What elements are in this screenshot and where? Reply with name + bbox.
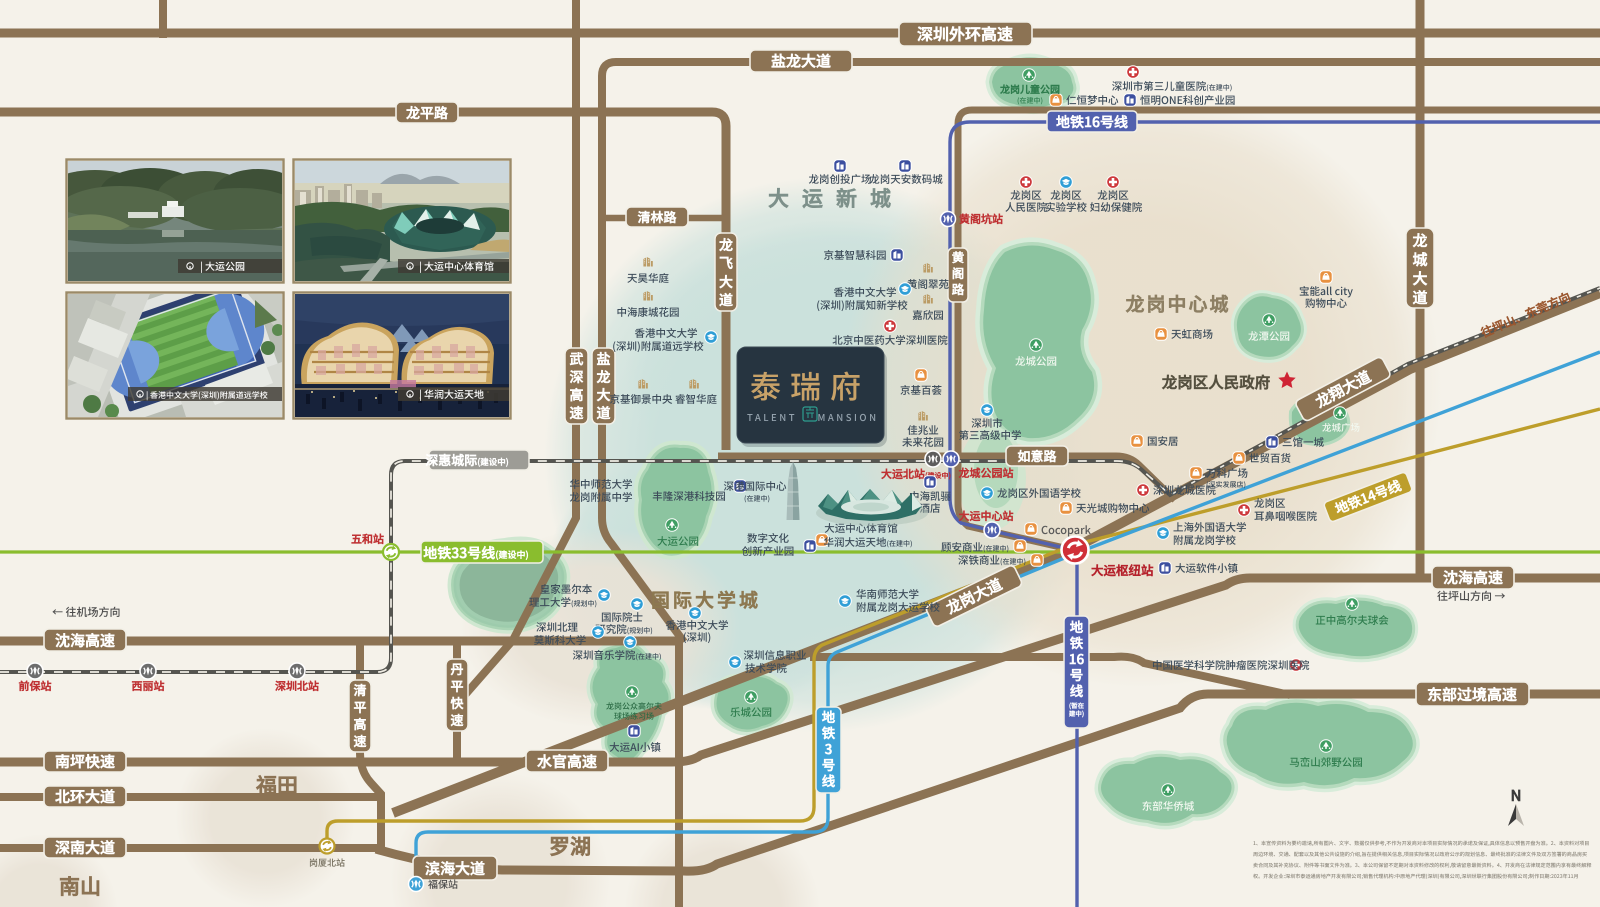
svg-text:北环大道: 北环大道 bbox=[54, 786, 115, 807]
svg-text:1、本宣传资料为要约邀请,所有图片、文字、数据仅供参考,不作: 1、本宣传资料为要约邀请,所有图片、文字、数据仅供参考,不作为开发商对本项目实际… bbox=[1253, 840, 1589, 847]
svg-text:附属龙岗大运学校: 附属龙岗大运学校 bbox=[856, 600, 940, 615]
svg-text:购物中心: 购物中心 bbox=[1305, 296, 1347, 311]
svg-text:TALENT: TALENT bbox=[747, 410, 797, 424]
svg-text:西丽站: 西丽站 bbox=[132, 678, 165, 694]
svg-text:福保站: 福保站 bbox=[428, 876, 458, 891]
svg-text:深南大道: 深南大道 bbox=[55, 837, 115, 858]
svg-text:大运枢纽站: 大运枢纽站 bbox=[1090, 560, 1154, 579]
svg-text:(深圳)附属道远学校: (深圳)附属道远学校 bbox=[612, 339, 704, 354]
svg-text:深港国际中心: 深港国际中心 bbox=[724, 479, 787, 494]
svg-text:京基百荟: 京基百荟 bbox=[900, 383, 942, 398]
svg-text:| 香港中文大学(深圳)附属道远学校: | 香港中文大学(深圳)附属道远学校 bbox=[146, 390, 268, 401]
svg-text:龙岗区人民政府: 龙岗区人民政府 bbox=[1161, 371, 1271, 393]
svg-text:天昊华庭: 天昊华庭 bbox=[627, 271, 669, 286]
svg-text:恒明ONE科创产业园: 恒明ONE科创产业园 bbox=[1140, 93, 1235, 108]
svg-text:天虹商场: 天虹商场 bbox=[1171, 327, 1213, 342]
svg-text:周边环境、交通、配套以及其他公共设施的介绍,旨在提供相关信息: 周边环境、交通、配套以及其他公共设施的介绍,旨在提供相关信息,项目实际情况以政府… bbox=[1253, 851, 1587, 858]
svg-text:京基御景中央: 京基御景中央 bbox=[610, 392, 673, 407]
svg-text:丹平快速: 丹平快速 bbox=[449, 659, 464, 729]
svg-text:耳鼻咽喉医院: 耳鼻咽喉医院 bbox=[1254, 509, 1317, 524]
svg-text:龙岗儿童公园: 龙岗儿童公园 bbox=[999, 81, 1060, 96]
svg-text:龙岗天安数码城: 龙岗天安数码城 bbox=[869, 172, 943, 187]
svg-text:龙岗中心城: 龙岗中心城 bbox=[1124, 290, 1230, 317]
svg-text:| 大运中心体育馆: | 大运中心体育馆 bbox=[419, 258, 494, 273]
svg-text:龙岗区外国语学校: 龙岗区外国语学校 bbox=[997, 486, 1081, 501]
svg-text:附属龙岗学校: 附属龙岗学校 bbox=[1173, 533, 1236, 548]
svg-text:北京中医药大学深圳医院: 北京中医药大学深圳医院 bbox=[832, 333, 948, 348]
svg-text:地铁16号线(暂在建中): 地铁16号线(暂在建中) bbox=[1068, 616, 1085, 718]
svg-text:| 大运公园: | 大运公园 bbox=[200, 258, 245, 273]
svg-text:万科广场: 万科广场 bbox=[1206, 466, 1248, 481]
svg-text:仁恒梦中心: 仁恒梦中心 bbox=[1066, 93, 1119, 108]
svg-text:| 华润大运天地: | 华润大运天地 bbox=[419, 386, 484, 401]
svg-text:睿智华庭: 睿智华庭 bbox=[675, 392, 717, 407]
svg-text:五和站: 五和站 bbox=[351, 531, 384, 547]
svg-text:大运新城: 大运新城 bbox=[768, 183, 904, 213]
svg-text:马峦山郊野公园: 马峦山郊野公园 bbox=[1289, 755, 1363, 770]
svg-text:往坪山方向 →: 往坪山方向 → bbox=[1437, 588, 1505, 604]
svg-text:东部过境高速: 东部过境高速 bbox=[1427, 684, 1517, 705]
svg-text:南坪快速: 南坪快速 bbox=[55, 751, 115, 772]
svg-text:沈海高速: 沈海高速 bbox=[55, 630, 115, 651]
svg-text:盐龙大道: 盐龙大道 bbox=[596, 349, 612, 423]
svg-text:创新产业园: 创新产业园 bbox=[742, 544, 795, 559]
svg-text:N: N bbox=[1510, 785, 1521, 806]
svg-text:清林路: 清林路 bbox=[636, 207, 677, 226]
svg-text:龙潭公园: 龙潭公园 bbox=[1248, 329, 1290, 344]
svg-text:龙城广场: 龙城广场 bbox=[1322, 420, 1360, 434]
svg-text:地铁16号线: 地铁16号线 bbox=[1056, 112, 1128, 132]
svg-text:(深圳): (深圳) bbox=[683, 630, 711, 645]
svg-text:MANSION: MANSION bbox=[817, 410, 878, 424]
svg-text:天光城购物中心: 天光城购物中心 bbox=[1076, 501, 1150, 516]
svg-text:中海康城花园: 中海康城花园 bbox=[617, 305, 680, 320]
svg-text:世贸百货: 世贸百货 bbox=[1249, 451, 1291, 466]
svg-text:水官高速: 水官高速 bbox=[536, 751, 597, 772]
svg-text:丰隆深港科技园: 丰隆深港科技园 bbox=[652, 489, 726, 504]
svg-text:龙飞大道: 龙飞大道 bbox=[718, 235, 734, 310]
svg-text:中国医学科学院肿瘤医院深圳医院: 中国医学科学院肿瘤医院深圳医院 bbox=[1152, 658, 1310, 673]
svg-text:(深圳)附属知新学校: (深圳)附属知新学校 bbox=[816, 298, 908, 313]
svg-text:武深高速: 武深高速 bbox=[570, 349, 584, 423]
svg-text:罗湖: 罗湖 bbox=[549, 831, 591, 861]
svg-text:第三高级中学: 第三高级中学 bbox=[959, 428, 1022, 443]
svg-text:黄阁坑站: 黄阁坑站 bbox=[959, 211, 1003, 227]
svg-text:沈海高速: 沈海高速 bbox=[1443, 567, 1503, 588]
svg-text:Cocopark: Cocopark bbox=[1041, 522, 1092, 538]
svg-text:京基智慧科园: 京基智慧科园 bbox=[824, 248, 887, 263]
svg-text:前保站: 前保站 bbox=[19, 678, 52, 694]
svg-text:黄阁翠苑: 黄阁翠苑 bbox=[907, 277, 949, 292]
svg-text:盐龙大道: 盐龙大道 bbox=[771, 51, 831, 72]
svg-text:大运公园: 大运公园 bbox=[657, 534, 699, 549]
svg-text:深圳外环高速: 深圳外环高速 bbox=[917, 21, 1013, 45]
svg-text:深圳北站: 深圳北站 bbox=[275, 678, 319, 694]
svg-text:南山: 南山 bbox=[59, 871, 101, 901]
svg-text:如意路: 如意路 bbox=[1017, 446, 1057, 465]
svg-text:黄阁路: 黄阁路 bbox=[952, 247, 965, 298]
svg-text:妇幼保健院: 妇幼保健院 bbox=[1090, 200, 1143, 215]
svg-text:泰瑞府: 泰瑞府 bbox=[750, 362, 870, 407]
svg-text:莫斯科大学: 莫斯科大学 bbox=[534, 633, 587, 648]
svg-text:嘉欣园: 嘉欣园 bbox=[912, 308, 944, 323]
svg-text:正中高尔夫球会: 正中高尔夫球会 bbox=[1315, 613, 1389, 628]
svg-text:← 往机场方向: ← 往机场方向 bbox=[52, 604, 120, 620]
svg-text:龙岗附属中学: 龙岗附属中学 bbox=[570, 490, 633, 505]
svg-text:国际大学城: 国际大学城 bbox=[651, 586, 761, 613]
svg-text:国安居: 国安居 bbox=[1147, 434, 1179, 449]
svg-text:福田: 福田 bbox=[255, 770, 298, 800]
svg-text:大运AI小镇: 大运AI小镇 bbox=[609, 740, 661, 755]
svg-text:大运软件小镇: 大运软件小镇 bbox=[1175, 561, 1238, 576]
svg-text:实验学校: 实验学校 bbox=[1045, 200, 1087, 215]
svg-text:龙城公园站: 龙城公园站 bbox=[958, 465, 1014, 481]
svg-text:球场练习场: 球场练习场 bbox=[614, 711, 654, 722]
svg-text:三馆一城: 三馆一城 bbox=[1282, 435, 1324, 450]
svg-text:岗厦北站: 岗厦北站 bbox=[309, 856, 345, 869]
svg-text:龙城公园: 龙城公园 bbox=[1015, 354, 1057, 369]
svg-text:权。开发企业:深圳市泰运通房地产开发有限公司;销售代理机构:: 权。开发企业:深圳市泰运通房地产开发有限公司;销售代理机构:中原地产代理(深圳)… bbox=[1253, 873, 1579, 880]
svg-text:(在建中): (在建中) bbox=[1017, 96, 1043, 106]
svg-text:东部华侨城: 东部华侨城 bbox=[1142, 799, 1195, 814]
svg-text:深圳龙城医院: 深圳龙城医院 bbox=[1153, 483, 1216, 498]
svg-text:乐城公园: 乐城公园 bbox=[730, 705, 772, 720]
svg-text:清平高速: 清平高速 bbox=[352, 680, 366, 750]
svg-text:龙城大道: 龙城大道 bbox=[1411, 230, 1427, 308]
svg-text:龙平路: 龙平路 bbox=[405, 103, 449, 123]
svg-text:未来花园: 未来花园 bbox=[902, 435, 944, 450]
svg-text:卖合同及其补充协议、附件等书面文件为准。3、本公司保留不定期: 卖合同及其补充协议、附件等书面文件为准。3、本公司保留不定期对本资料修改的权利,… bbox=[1253, 862, 1591, 869]
svg-text:人民医院: 人民医院 bbox=[1005, 200, 1047, 215]
svg-text:大运中心站: 大运中心站 bbox=[958, 508, 1014, 524]
svg-text:技术学院: 技术学院 bbox=[745, 661, 787, 676]
svg-text:(在建中): (在建中) bbox=[744, 494, 770, 504]
svg-text:龙岗创投广场: 龙岗创投广场 bbox=[809, 172, 872, 187]
